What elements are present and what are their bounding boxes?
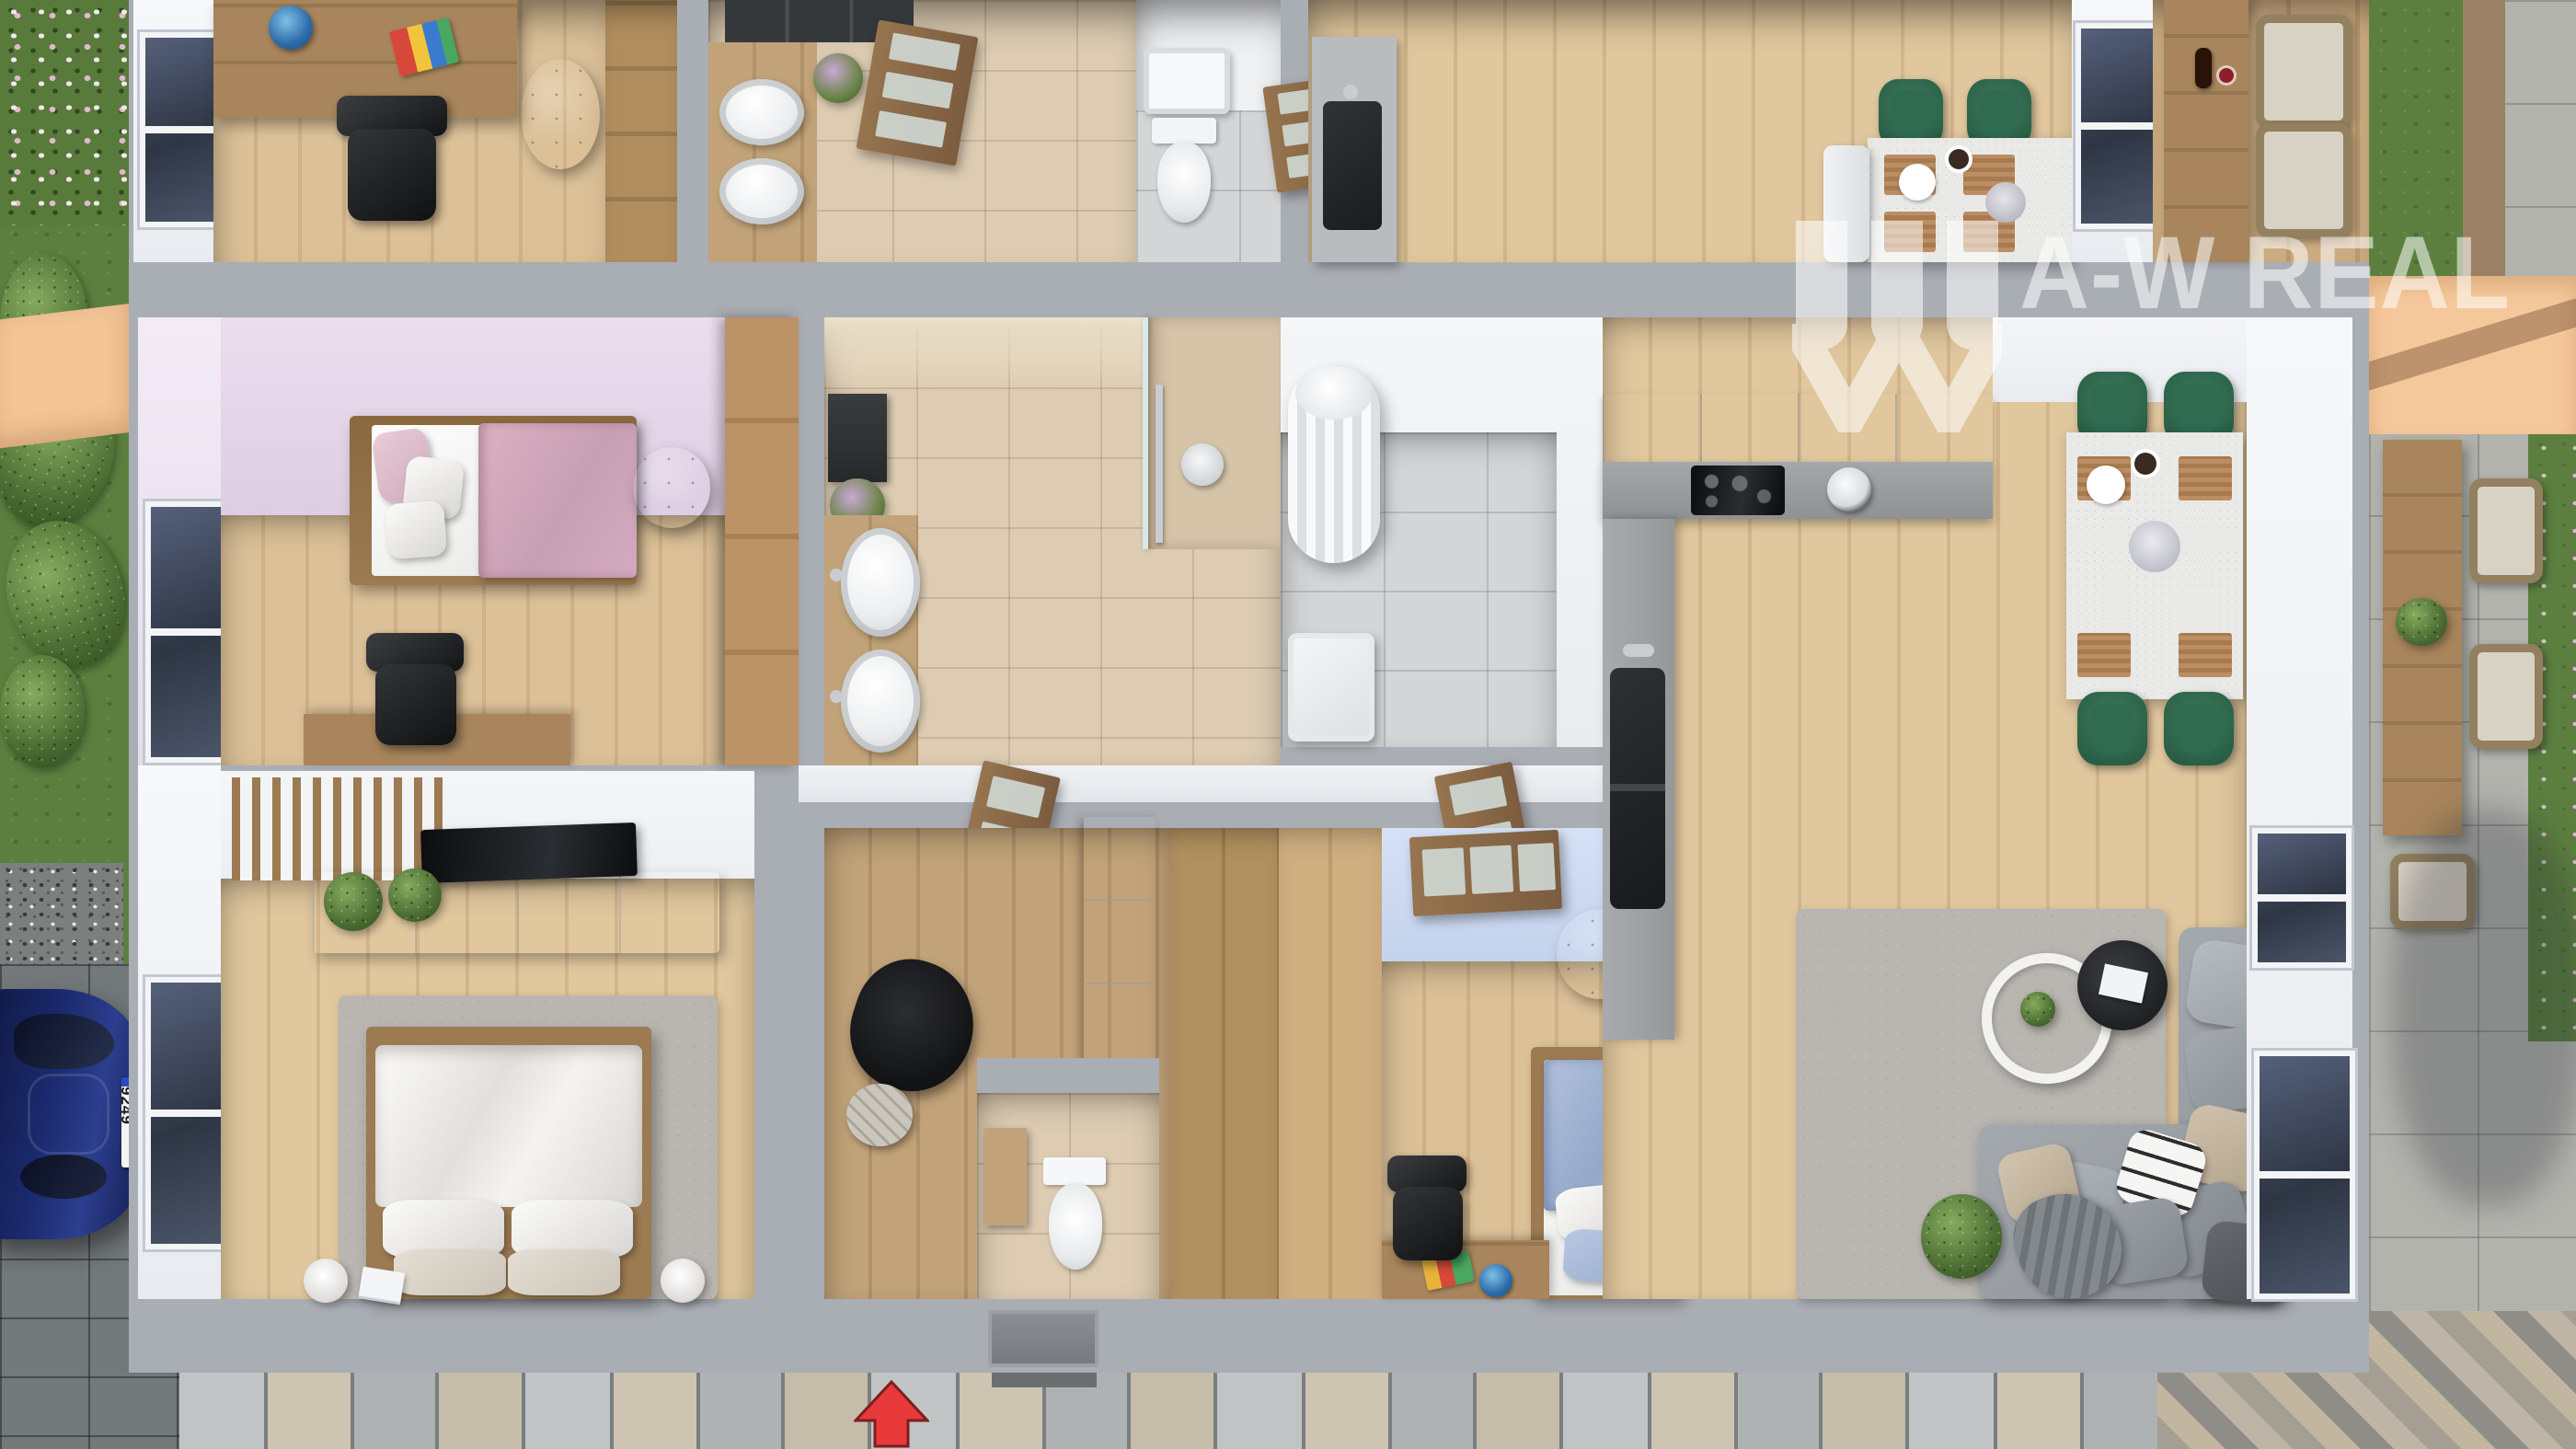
pink-duvet	[478, 423, 637, 578]
pink-room-window	[145, 501, 226, 763]
water-heater-top	[1295, 366, 1373, 420]
plant	[324, 872, 383, 931]
dining-chair-green	[2077, 692, 2147, 765]
kitchen-counter	[1603, 462, 1993, 519]
kettle	[1827, 467, 1871, 512]
blue-room-door	[1409, 830, 1562, 916]
shower-tray	[1144, 48, 1230, 114]
coffee-cup	[2134, 453, 2156, 475]
toilet-bowl	[1157, 142, 1211, 223]
toilet-bowl	[1049, 1183, 1102, 1270]
built-in-wardrobe-dark	[1170, 828, 1279, 1299]
car-roof-line	[28, 1074, 109, 1155]
bench-white	[1823, 145, 1869, 262]
deck-chair	[2256, 123, 2352, 237]
sink	[719, 158, 804, 224]
wc-wall-cabinet	[984, 1128, 1027, 1225]
kitchen-upper-cabinets	[1603, 394, 1993, 464]
office-window	[140, 32, 221, 227]
terrace-awning	[2369, 276, 2576, 434]
wine-bottle	[2195, 48, 2212, 88]
kitchen-sink	[1610, 668, 1665, 909]
doormat	[992, 1373, 1097, 1387]
office-chair-seat	[1393, 1187, 1463, 1260]
plant	[388, 868, 442, 922]
table-plant	[2020, 992, 2055, 1027]
placemat	[2077, 633, 2131, 677]
faucet-icon	[1623, 644, 1654, 657]
globe-icon	[1479, 1264, 1512, 1297]
master-window	[145, 977, 226, 1249]
built-in-wardrobe-light	[1279, 828, 1382, 1299]
wine-glass	[2219, 68, 2234, 83]
flowers	[813, 53, 863, 103]
placemat	[2179, 456, 2232, 500]
wc-small-wall	[977, 1058, 1159, 1093]
cooktop	[1691, 466, 1785, 515]
placemat	[2179, 633, 2232, 677]
awning-shadow	[2352, 286, 2576, 393]
faucet-icon	[1343, 85, 1358, 99]
deck-chair	[2256, 15, 2352, 129]
shower-head	[1181, 443, 1224, 486]
washing-machine	[1288, 633, 1374, 742]
flower-vase	[2129, 521, 2180, 572]
vanity-counter	[708, 42, 817, 262]
hall-cabinet	[1084, 815, 1156, 1065]
tv-flat	[420, 822, 638, 883]
entrance-door-top-view	[988, 1310, 1098, 1367]
toilet-tank	[1152, 118, 1216, 144]
flower-vase	[1985, 182, 2026, 223]
deck-table	[2164, 0, 2248, 262]
sink	[841, 528, 920, 637]
car-windshield	[14, 1014, 114, 1069]
wood-slat-panel	[232, 777, 445, 880]
dining-table-upper	[1868, 138, 2072, 262]
faucet-icon	[830, 690, 843, 703]
car: M·NU 9249	[0, 989, 142, 1239]
flower-bed	[0, 0, 138, 225]
paved-walkway	[179, 1373, 2167, 1449]
garden-path	[2463, 0, 2505, 278]
bush-icon	[0, 655, 85, 767]
bedside-lamp	[304, 1259, 348, 1303]
shower-area	[1148, 317, 1281, 549]
bedside-lamp	[661, 1259, 705, 1303]
mirror-cabinet	[828, 394, 887, 482]
flat-cap	[846, 1084, 913, 1146]
dining-table	[2066, 432, 2243, 699]
office-chair-seat	[348, 129, 436, 221]
coffee-cup	[1949, 149, 1969, 169]
sink	[719, 79, 804, 145]
living-window	[2252, 828, 2352, 968]
upper-terrace-window	[2076, 23, 2158, 229]
sink-divider	[1610, 784, 1665, 791]
plate-setting	[1899, 164, 1936, 201]
office-chair-seat	[375, 664, 456, 745]
plate-setting	[2087, 466, 2125, 504]
pouf	[521, 59, 600, 169]
shower-column	[1156, 385, 1163, 543]
upper-garden-grass	[2369, 0, 2463, 278]
toilet-tank	[1043, 1157, 1106, 1185]
pink-room-wardrobe	[725, 317, 799, 765]
pillow-beige	[394, 1249, 506, 1295]
kitchen-upper-sink	[1323, 101, 1382, 230]
globe-icon	[269, 6, 313, 50]
placemat	[1884, 212, 1936, 252]
pillow-beige	[508, 1249, 620, 1295]
pillow-white	[385, 500, 447, 559]
gravel-bed	[0, 863, 123, 966]
neighbor-awning-corner	[0, 303, 138, 448]
faucet-icon	[830, 569, 843, 581]
shower-glass-partition	[1143, 317, 1148, 549]
sink	[841, 650, 920, 753]
potted-plant	[1921, 1194, 2002, 1279]
dining-chair-green	[2164, 692, 2234, 765]
outdoor-chair	[2469, 478, 2543, 583]
white-duvet	[375, 1045, 642, 1207]
pouf	[633, 447, 710, 528]
car-rear-window	[20, 1155, 107, 1200]
office-wardrobe	[605, 0, 677, 262]
tree-shadow	[2392, 810, 2576, 1205]
entrance-arrow-icon	[854, 1380, 929, 1448]
succulent-bowl	[2396, 598, 2447, 646]
outdoor-chair	[2469, 644, 2543, 749]
living-window	[2254, 1051, 2355, 1299]
floor-plan-render: M·NU 9249	[0, 0, 2576, 1449]
